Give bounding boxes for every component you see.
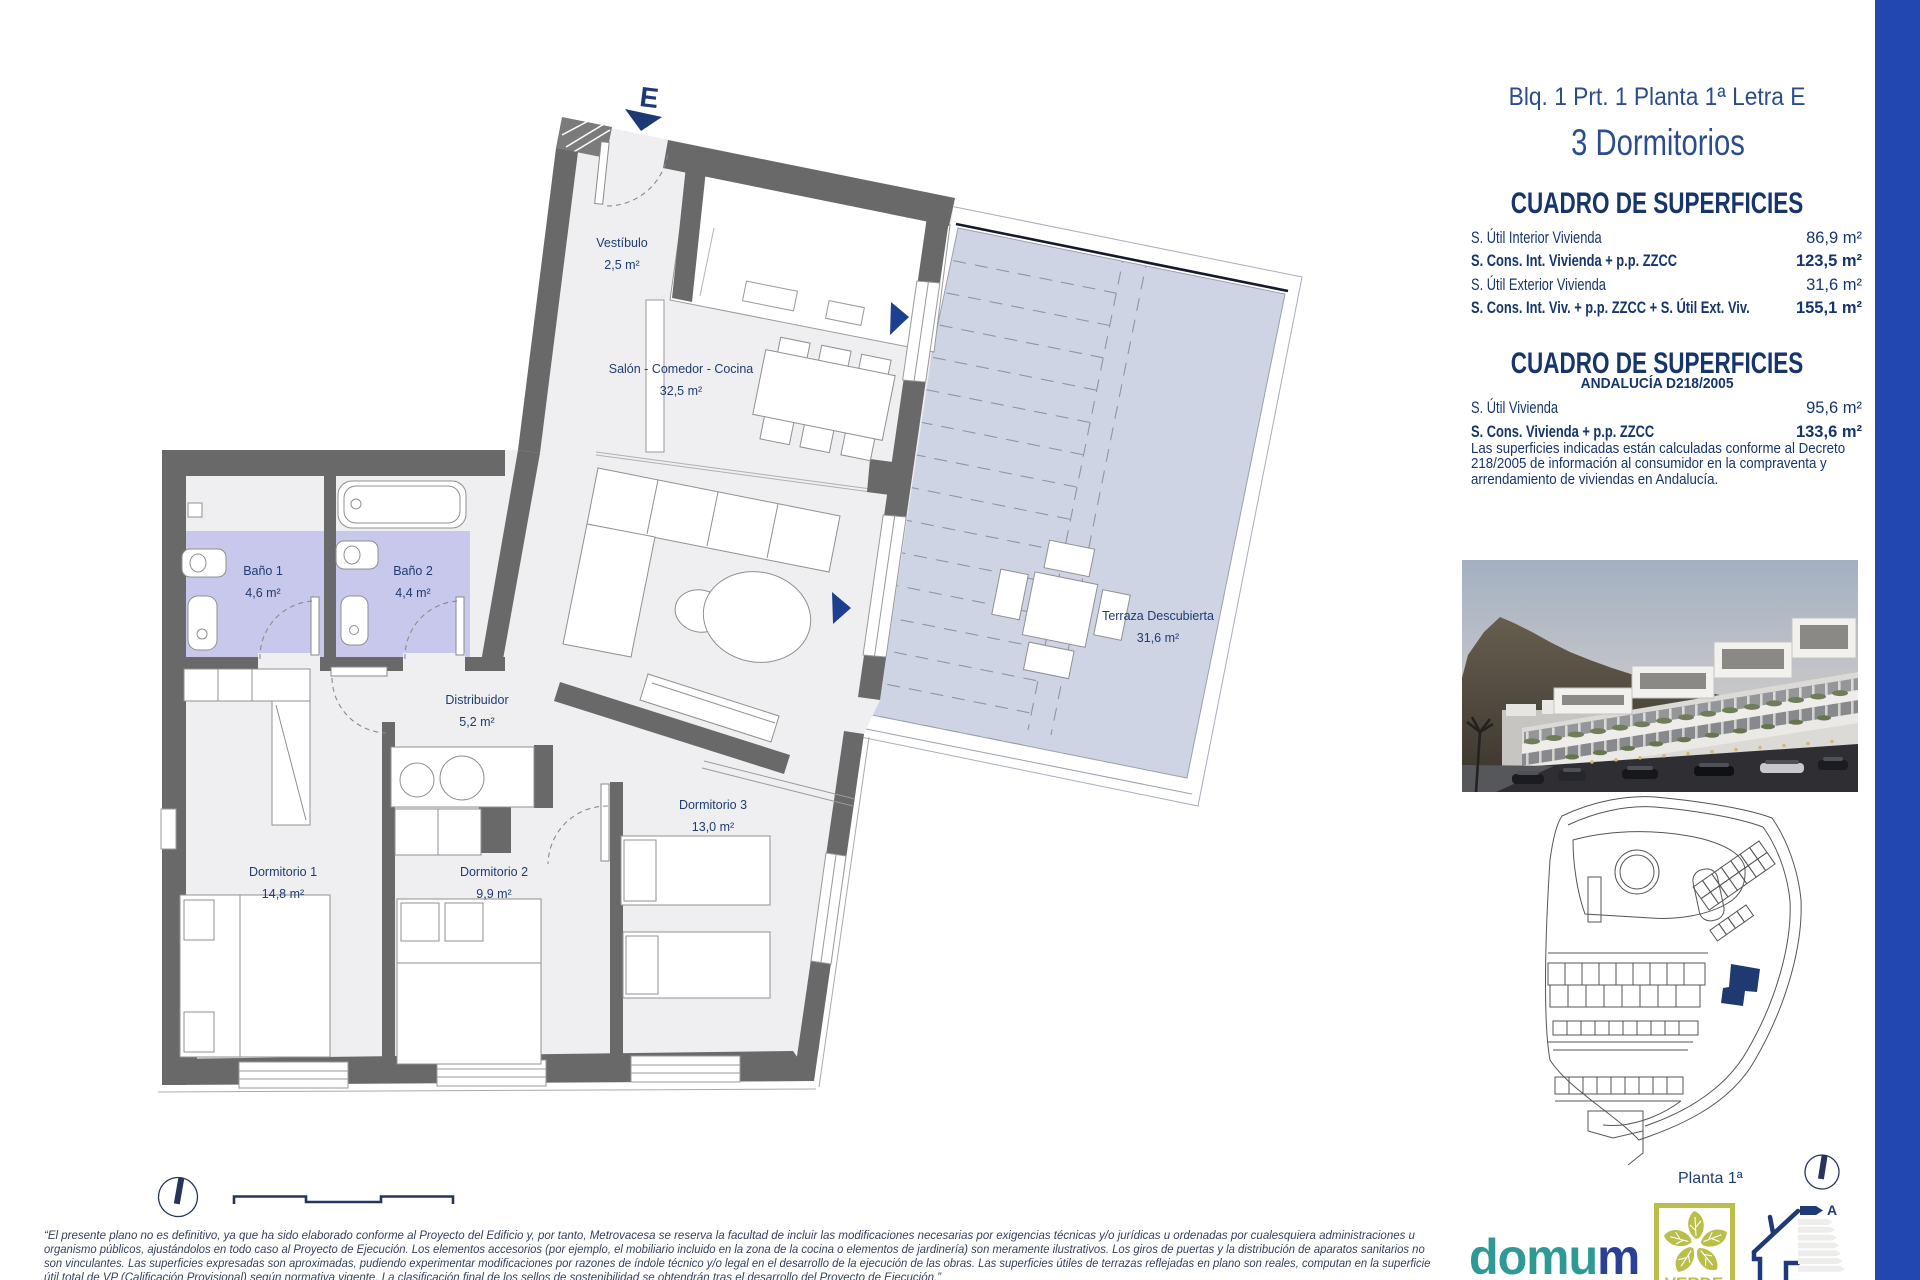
svg-text:4,6 m²: 4,6 m² [245,586,280,600]
svg-text:E: E [638,81,660,114]
svg-text:Dormitorio 3: Dormitorio 3 [679,798,747,812]
svg-text:Baño 2: Baño 2 [393,564,433,578]
svg-text:9,9 m²: 9,9 m² [476,887,511,901]
svg-text:Terraza Descubierta: Terraza Descubierta [1102,609,1214,623]
svg-text:13,0 m²: 13,0 m² [692,820,734,834]
svg-text:5,2 m²: 5,2 m² [459,715,494,729]
svg-text:31,6 m²: 31,6 m² [1137,631,1179,645]
svg-text:Baño 1: Baño 1 [243,564,283,578]
svg-text:14,8 m²: 14,8 m² [262,887,304,901]
svg-text:Dormitorio 2: Dormitorio 2 [460,865,528,879]
svg-text:4,4 m²: 4,4 m² [395,586,430,600]
svg-text:Salón - Comedor - Cocina: Salón - Comedor - Cocina [609,362,754,376]
svg-text:32,5 m²: 32,5 m² [660,384,702,398]
svg-text:Dormitorio 1: Dormitorio 1 [249,865,317,879]
svg-text:Distribuidor: Distribuidor [445,693,508,707]
svg-text:2,5 m²: 2,5 m² [604,258,639,272]
svg-text:Vestíbulo: Vestíbulo [596,236,647,250]
